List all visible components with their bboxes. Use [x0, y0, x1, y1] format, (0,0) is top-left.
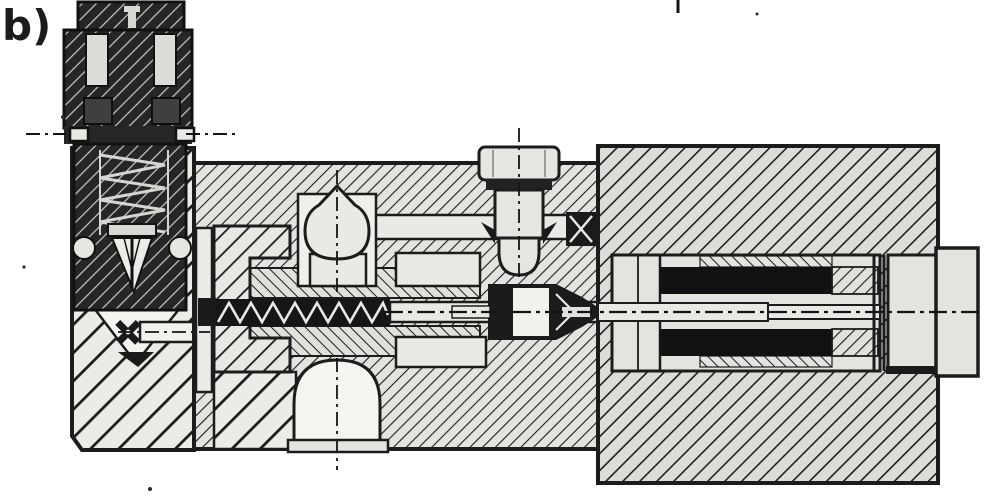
- figure-label: b): [2, 1, 51, 50]
- coil-slot-right: [154, 34, 176, 86]
- dark-sleeve-upper: [660, 267, 832, 294]
- middle-valve-block: [194, 147, 598, 452]
- dome-cavity: [288, 360, 388, 452]
- upper-channel: [356, 215, 598, 239]
- right-cylinder-block: [598, 146, 978, 483]
- chamber-upper: [396, 253, 480, 286]
- dark-sleeve-lower: [660, 329, 832, 356]
- coil-slot-left: [86, 34, 108, 86]
- cross-section-drawing: b): [0, 0, 991, 497]
- pilot-valve-unit: [64, 2, 194, 310]
- dome-base-plate: [288, 440, 388, 452]
- spool-spring: [216, 299, 390, 326]
- scanned-drawing-page: b): [0, 0, 991, 497]
- flange-port-left: [70, 128, 88, 141]
- side-plug: [566, 212, 596, 246]
- chamber-lower: [396, 337, 486, 367]
